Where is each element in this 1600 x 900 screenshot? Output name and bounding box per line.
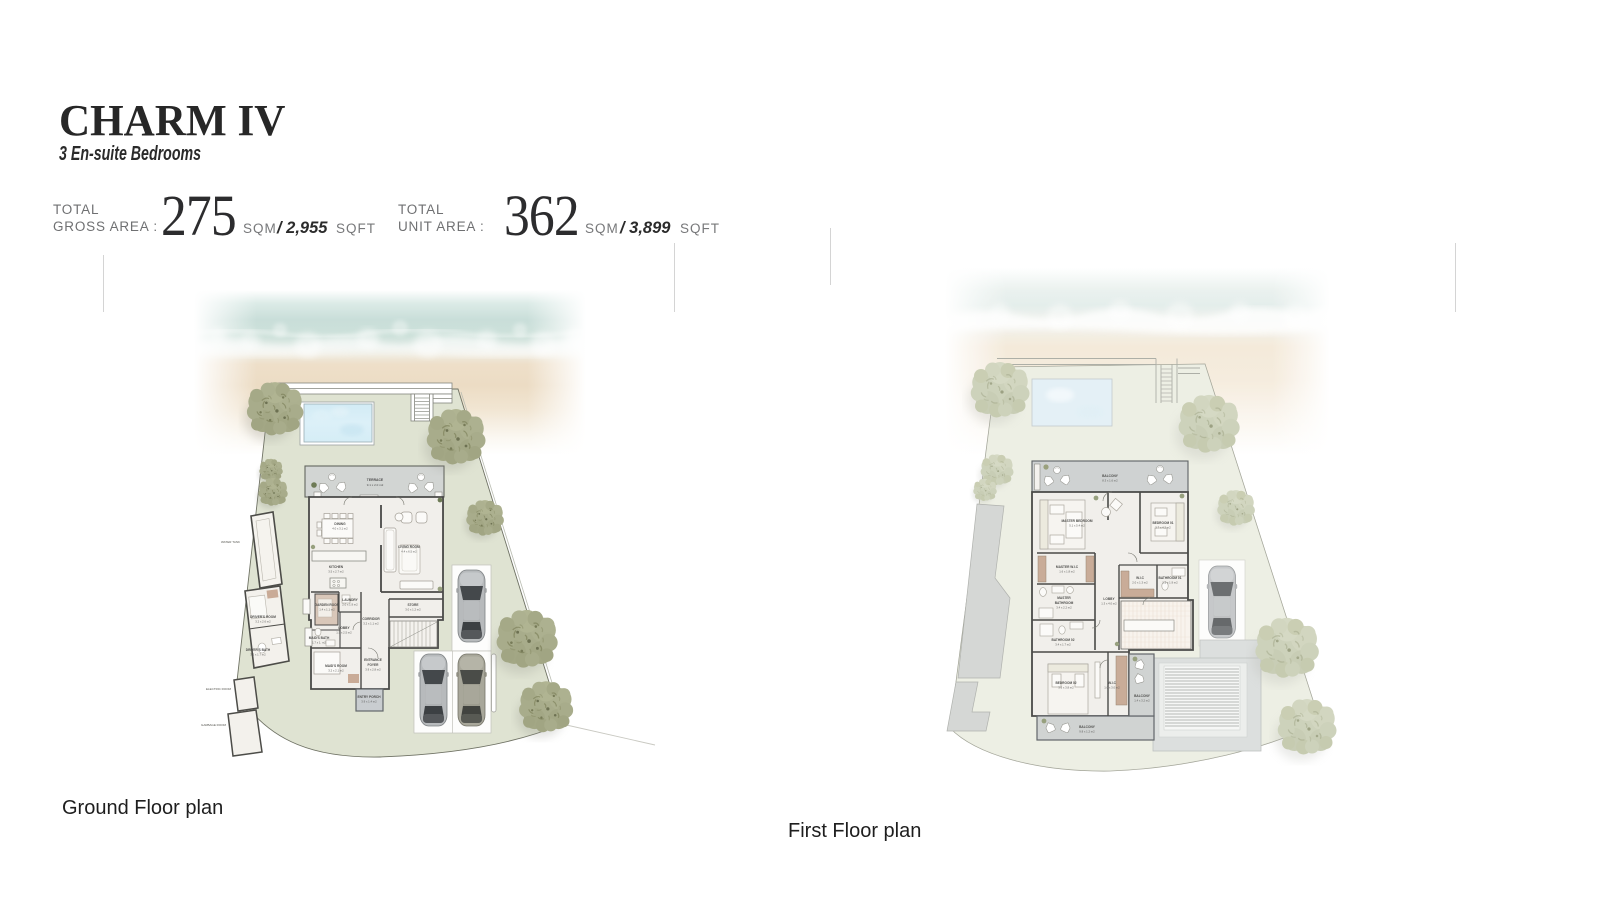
svg-text:DINING: DINING <box>334 522 346 526</box>
svg-text:LIVING ROOM: LIVING ROOM <box>398 545 420 549</box>
svg-text:3.4 x 2.2 m2: 3.4 x 2.2 m2 <box>1056 606 1072 610</box>
svg-text:DRIVER'S ROOM: DRIVER'S ROOM <box>250 615 276 619</box>
svg-text:MAID'S ROOM: MAID'S ROOM <box>325 664 347 668</box>
svg-text:CORRIDOR: CORRIDOR <box>362 617 380 621</box>
svg-text:W.I.C: W.I.C <box>1136 576 1144 580</box>
svg-text:LOBBY: LOBBY <box>1103 597 1115 601</box>
svg-text:KITCHEN: KITCHEN <box>329 565 344 569</box>
svg-text:ELECTRIC ROOM: ELECTRIC ROOM <box>206 687 232 691</box>
svg-text:3.7 x 4.2 m2: 3.7 x 4.2 m2 <box>1155 526 1171 530</box>
svg-text:1.4 x 3.2 m2: 1.4 x 3.2 m2 <box>1134 699 1150 703</box>
svg-text:3.9 x 2.8 m2: 3.9 x 2.8 m2 <box>365 668 381 672</box>
svg-text:FOYER: FOYER <box>368 663 380 667</box>
svg-text:3.2 x 1.1 m2: 3.2 x 1.1 m2 <box>363 622 379 626</box>
svg-text:3.2 x 1.7 m2: 3.2 x 1.7 m2 <box>250 653 266 657</box>
svg-text:3.2 x 2.6 m2: 3.2 x 2.6 m2 <box>255 620 271 624</box>
svg-text:MASTER: MASTER <box>1057 596 1071 600</box>
svg-text:LOBBY: LOBBY <box>338 626 350 630</box>
svg-text:1.0 x 3.0 m2: 1.0 x 3.0 m2 <box>1104 686 1120 690</box>
svg-text:BATHROOM 02: BATHROOM 02 <box>1052 638 1075 642</box>
svg-text:BATHROOM 01: BATHROOM 01 <box>1159 576 1182 580</box>
svg-text:TERRACE: TERRACE <box>367 478 384 482</box>
svg-text:9.8 x 1.2 m2: 9.8 x 1.2 m2 <box>1079 730 1095 734</box>
svg-text:MASTER BEDROOM: MASTER BEDROOM <box>1062 519 1093 523</box>
svg-text:5.1 x 5.4 m2: 5.1 x 5.4 m2 <box>1069 524 1085 528</box>
svg-text:BEDROOM 02: BEDROOM 02 <box>1055 681 1076 685</box>
svg-text:3.6 x 3.8 m2: 3.6 x 3.8 m2 <box>1058 686 1074 690</box>
svg-text:MASTER W.I.C: MASTER W.I.C <box>1056 565 1079 569</box>
svg-text:2.0 x 1.3 m2: 2.0 x 1.3 m2 <box>1132 581 1148 585</box>
svg-text:3.0 x 1.2 m2: 3.0 x 1.2 m2 <box>405 608 421 612</box>
svg-text:3.4 x 1.7 m2: 3.4 x 1.7 m2 <box>1055 643 1071 647</box>
svg-text:MAID'S BATH: MAID'S BATH <box>309 636 330 640</box>
svg-text:1.7 x 1. m2: 1.7 x 1. m2 <box>312 641 326 645</box>
svg-text:1.3 x 4.0 m2: 1.3 x 4.0 m2 <box>1101 602 1117 606</box>
svg-text:1.4 x 1.1 m2: 1.4 x 1.1 m2 <box>319 608 335 612</box>
svg-text:GARDEN ROOM: GARDEN ROOM <box>315 603 340 607</box>
svg-text:BATHROOM: BATHROOM <box>1055 601 1074 605</box>
svg-text:STORE: STORE <box>408 603 419 607</box>
svg-text:LAUNDRY: LAUNDRY <box>342 598 358 602</box>
svg-text:1.5 x 1.9 m2: 1.5 x 1.9 m2 <box>1162 581 1178 585</box>
svg-text:BALCONY: BALCONY <box>1134 694 1151 698</box>
svg-text:ENTRANCE: ENTRANCE <box>364 658 382 662</box>
svg-text:WATER TANK: WATER TANK <box>221 540 240 544</box>
svg-text:GARBAGE ROOM: GARBAGE ROOM <box>201 723 227 727</box>
svg-text:2.0 x 1.9 m2: 2.0 x 1.9 m2 <box>342 603 358 607</box>
svg-text:BALCONY: BALCONY <box>1079 725 1096 729</box>
svg-text:3.5 x 2.7 m2: 3.5 x 2.7 m2 <box>328 570 344 574</box>
svg-text:4.4 x 6.5 m2: 4.4 x 6.5 m2 <box>401 550 417 554</box>
svg-text:4.0 x 3.1 m2: 4.0 x 3.1 m2 <box>332 527 348 531</box>
svg-text:9.1 x 2.0 m2: 9.1 x 2.0 m2 <box>367 483 384 487</box>
svg-text:BALCONY: BALCONY <box>1102 474 1119 478</box>
svg-text:DRIVER'S BATH: DRIVER'S BATH <box>246 648 271 652</box>
svg-text:W.I.C: W.I.C <box>1108 681 1116 685</box>
svg-text:3.2 x 2.1 m2: 3.2 x 2.1 m2 <box>328 669 344 673</box>
svg-text:1.6 x 1.8 m2: 1.6 x 1.8 m2 <box>1059 570 1075 574</box>
svg-text:1.5 x 2.5 m2: 1.5 x 2.5 m2 <box>336 631 352 635</box>
svg-text:BEDROOM 01: BEDROOM 01 <box>1152 521 1173 525</box>
svg-text:ENTRY PORCH: ENTRY PORCH <box>357 695 381 699</box>
svg-text:3.9 x 1.4 m2: 3.9 x 1.4 m2 <box>361 700 377 704</box>
svg-text:8.3 x 1.6 m2: 8.3 x 1.6 m2 <box>1102 479 1118 483</box>
